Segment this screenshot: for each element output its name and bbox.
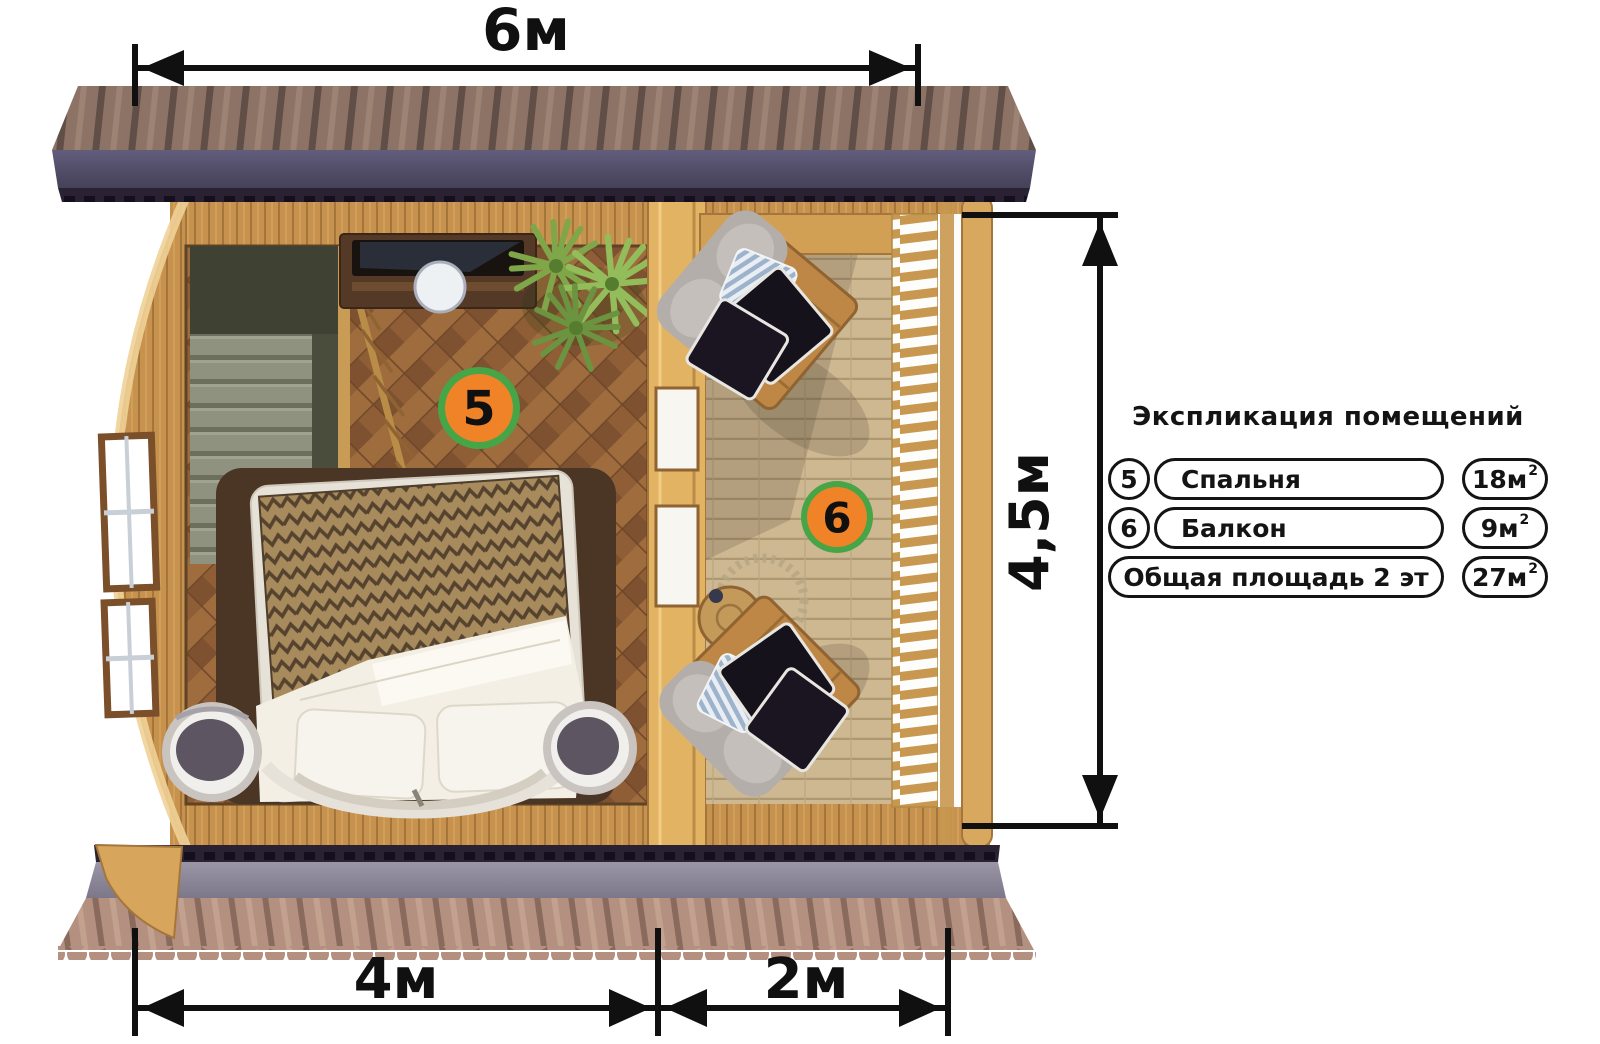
- legend-row: 5 Спальня 18м2: [1108, 458, 1548, 500]
- pouf-left: [162, 702, 262, 802]
- roof-bottom: [58, 845, 1036, 960]
- room-marker-number: 6: [822, 494, 851, 543]
- legend-total-area: 27м2: [1462, 556, 1548, 598]
- room-marker-bedroom: 5: [438, 367, 520, 449]
- divider-window: [656, 506, 698, 606]
- dim-label-bedroom-width: 4м: [354, 947, 439, 1012]
- dim-label-total-width: 6м: [482, 0, 570, 64]
- bedroom: [101, 210, 680, 812]
- round-lamp: [415, 262, 465, 312]
- legend-room-number: 6: [1108, 507, 1150, 549]
- right-corner-post: [962, 196, 992, 847]
- legend-row: 6 Балкон 9м2: [1108, 507, 1548, 549]
- dim-label-balcony-width: 2м: [764, 947, 849, 1012]
- legend-title: Экспликация помещений: [1108, 402, 1548, 432]
- legend-room-name: Спальня: [1154, 458, 1444, 500]
- left-windows: [101, 435, 156, 715]
- floor-plan-page: 6м 4,5м 4м 2м 5 6 Экспликация помещений …: [0, 0, 1600, 1044]
- divider-window: [656, 388, 698, 470]
- area-value: 27м: [1472, 563, 1527, 592]
- legend-total-label: Общая площадь 2 эт: [1108, 556, 1444, 598]
- legend-room-name: Балкон: [1154, 507, 1444, 549]
- legend-row-total: Общая площадь 2 эт 27м2: [1108, 556, 1548, 598]
- tv-console: [340, 234, 536, 312]
- area-value: 18м: [1472, 465, 1527, 494]
- roof-top: [52, 86, 1036, 202]
- roof-top-fascia: [52, 150, 1036, 188]
- pouf-right: [543, 701, 637, 795]
- dim-label-total-depth: 4,5м: [998, 452, 1061, 592]
- room-marker-number: 5: [462, 381, 495, 437]
- area-value: 9м: [1481, 514, 1519, 543]
- legend: Экспликация помещений 5 Спальня 18м2 6 Б…: [1108, 402, 1548, 598]
- legend-room-number: 5: [1108, 458, 1150, 500]
- roof-top-planks: [52, 86, 1036, 150]
- balcony-railing: [892, 214, 938, 807]
- legend-room-area: 18м2: [1462, 458, 1548, 500]
- legend-room-area: 9м2: [1462, 507, 1548, 549]
- room-marker-balcony: 6: [801, 481, 873, 553]
- roof-bottom-fascia: [86, 862, 1006, 898]
- roof-bottom-planks: [58, 898, 1034, 950]
